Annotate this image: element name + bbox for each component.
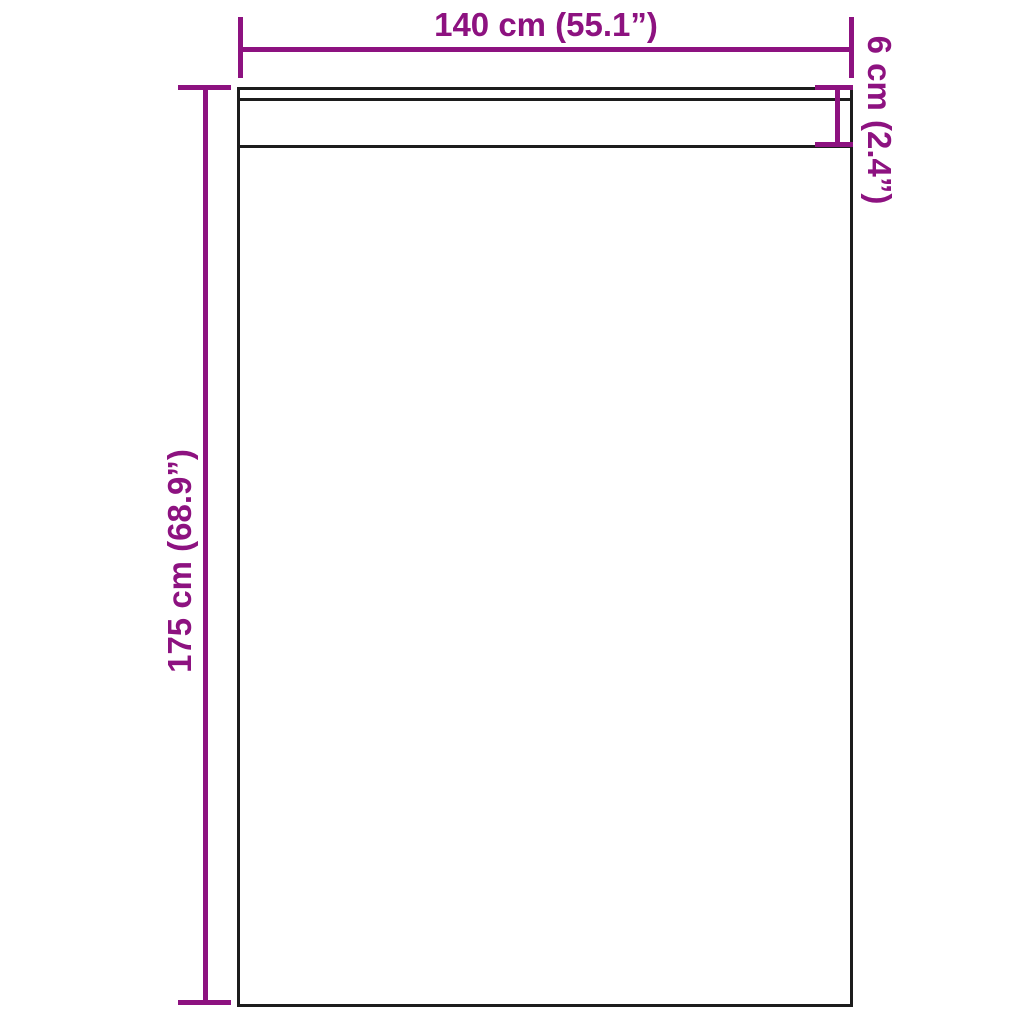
band-dimension-tick-top [815, 85, 853, 90]
height-dimension-line [203, 88, 208, 1003]
band-dimension-tick-bottom [815, 142, 853, 147]
width-dimension-label: 140 cm (55.1”) [346, 8, 746, 42]
curtain-panel [237, 87, 853, 1007]
band-dimension-label: 6 cm (2.4”) [862, 0, 896, 240]
top-hem-seam-line [240, 98, 850, 101]
width-dimension-tick-left [238, 17, 243, 78]
header-band-seam-line [240, 145, 850, 148]
height-dimension-label: 175 cm (68.9”) [163, 401, 197, 721]
width-dimension-line [240, 47, 853, 52]
width-dimension-tick-right [849, 17, 854, 78]
dimension-diagram: 140 cm (55.1”) 175 cm (68.9”) 6 cm (2.4”… [0, 0, 1024, 1024]
height-dimension-tick-bottom [178, 1000, 231, 1005]
height-dimension-tick-top [178, 85, 231, 90]
band-dimension-line [835, 88, 840, 145]
